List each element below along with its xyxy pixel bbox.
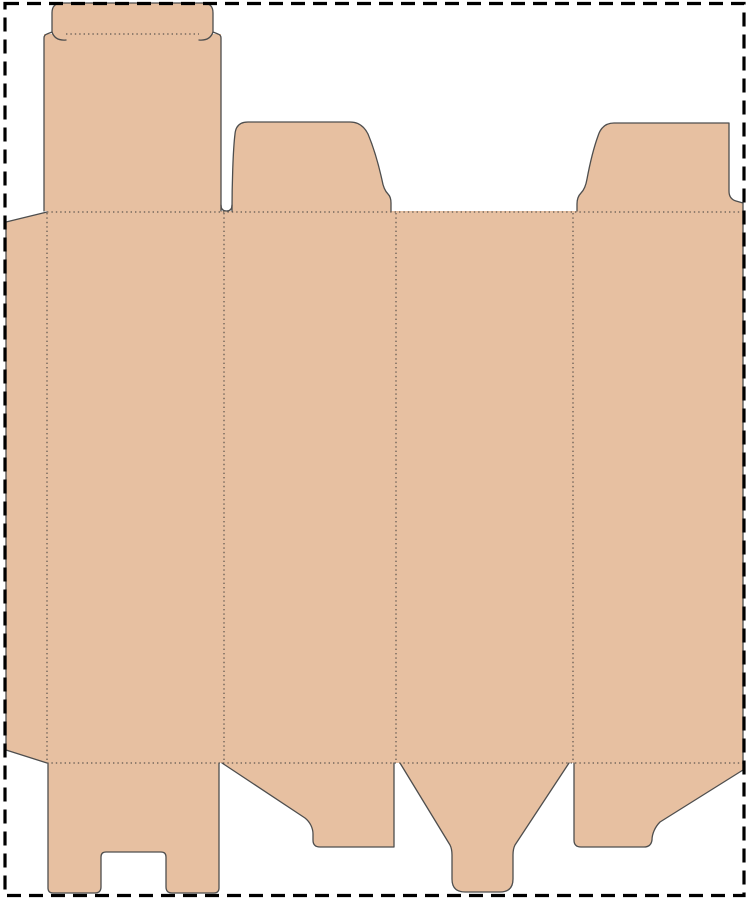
glue-flap [6,212,47,763]
top-slit-u-cut [221,205,232,211]
dieline-svg [0,0,747,900]
board-fills-group [6,3,743,893]
bottom-flap-4 [574,763,743,847]
bottom-flap-1 [48,763,219,893]
top-dust-flap-right [577,123,743,211]
body-panels [47,211,743,763]
bottom-flap-3-funnel [400,763,569,892]
top-dust-flap-left [232,122,391,211]
tuck-flap [52,3,213,34]
bottom-flap-2 [222,763,394,847]
top-tuck-panel [44,34,221,211]
dieline-page [0,0,747,900]
